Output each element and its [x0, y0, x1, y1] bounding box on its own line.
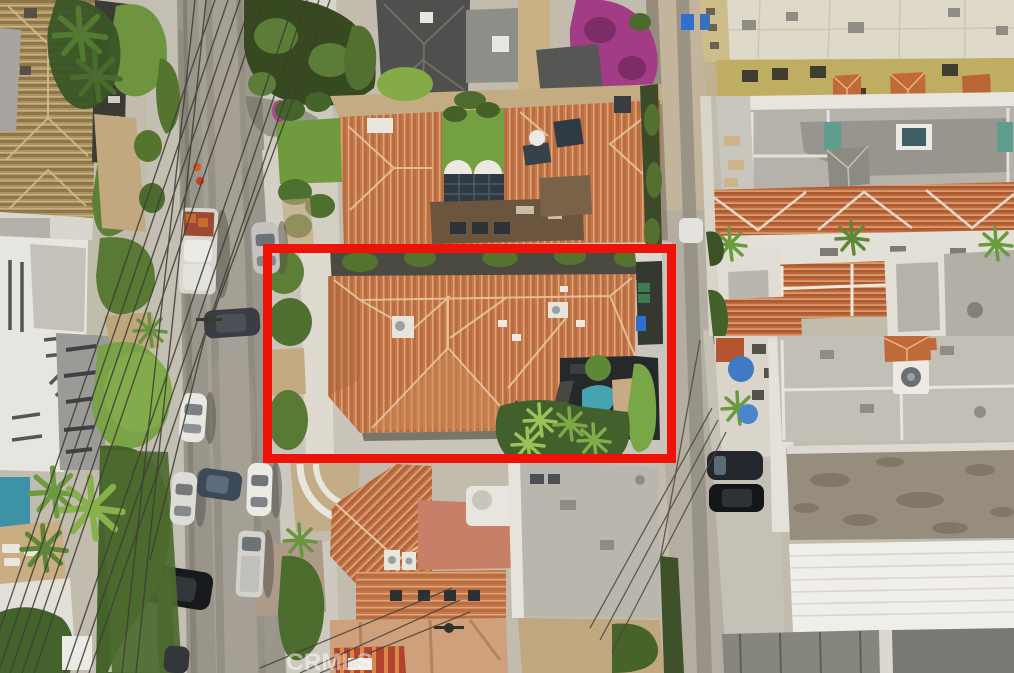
svg-text:CRMLS: CRMLS — [286, 649, 373, 673]
